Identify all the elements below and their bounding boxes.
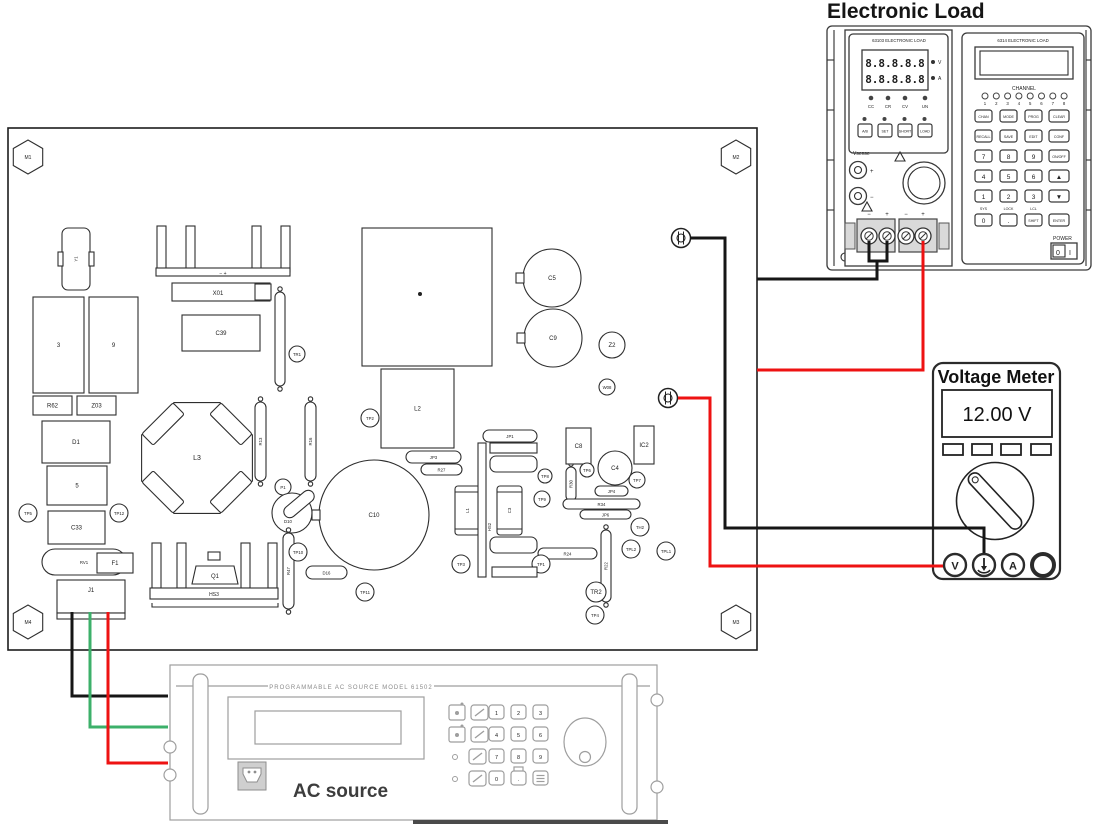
pcb-jp3: JP3 [406,451,461,463]
pcb-r47: R47 [283,528,294,614]
svg-text:CHAN: CHAN [978,115,989,119]
svg-text:▼: ▼ [1056,194,1062,201]
ac-source-label: AC source [293,781,388,802]
pcb-tp4: TP4 [586,606,604,624]
meter-button-2[interactable] [972,444,992,455]
hs1-polarity: − + [219,271,226,277]
meter-terminal-blank [1032,554,1054,576]
key-▼[interactable]: ▼ [1049,190,1069,202]
svg-text:1: 1 [982,194,986,201]
pcb-c39: C39 [182,315,260,351]
svg-text:RV1: RV1 [80,560,89,565]
svg-text:2: 2 [517,711,520,717]
svg-text:TP10: TP10 [293,550,304,555]
svg-text:C9: C9 [549,336,557,342]
pcb-r13: R13 [255,397,266,486]
svg-text:−: − [870,195,874,201]
pcb-l1: L1 [455,486,480,535]
svg-text:F1: F1 [111,561,119,567]
svg-text:EDIT: EDIT [1029,135,1038,139]
ac-key-0[interactable]: 0 [489,771,504,785]
pcb-output-terminal-1 [672,229,691,248]
svg-text:Y1: Y1 [74,256,79,262]
svg-text:Z03: Z03 [91,404,102,410]
pcb-tp6: TP6 [580,463,594,477]
module-display-row2: 8.8.8.8.8 [865,73,925,86]
hs3-label: HS3 [209,592,219,598]
svg-text:D10: D10 [284,519,292,524]
pcb-tp11: TP11 [356,583,374,601]
pcb-r16: R16 [305,397,316,486]
ac-key-9[interactable]: 9 [533,749,548,763]
key-3[interactable]: 3 [1025,190,1042,202]
ac-key-4[interactable]: 4 [489,727,504,741]
pcb-l2: L2 [381,369,454,448]
svg-text:D16: D16 [323,571,331,576]
pcb-jp6: JP6 [580,510,631,519]
svg-text:5: 5 [1007,174,1011,181]
key-recall[interactable]: RECALL [975,130,992,142]
svg-text:R16: R16 [308,437,313,445]
key-prog[interactable]: PROG [1025,110,1042,122]
module-knob[interactable] [903,162,945,204]
svg-text:TP7: TP7 [633,478,641,483]
usb-connector-icon [238,762,266,790]
svg-text:9: 9 [1032,154,1036,161]
module-header: 63103 ELECTRONIC LOAD [872,38,926,43]
pcb-r62: R62 [33,396,72,415]
hs2-label: HS2 [487,522,492,531]
key-mode[interactable]: MODE [1000,110,1017,122]
key-2[interactable]: 2 [1000,190,1017,202]
pcb-r34: R34 [563,499,640,509]
svg-text:UN: UN [922,104,928,109]
svg-text:CLEAR: CLEAR [1053,115,1065,119]
pcb-tp10: TP10 [289,543,307,561]
key-sublabel-sys: SYS [980,207,988,211]
ac-key-2[interactable]: 2 [511,705,526,719]
svg-text:Z2: Z2 [608,343,616,349]
pcb-c3: C3 [497,486,522,535]
mainframe-header: 6314 ELECTRONIC LOAD [997,38,1048,43]
pcb-tp7: TP7 [629,472,645,488]
svg-text:6: 6 [1032,174,1036,181]
svg-text:6: 6 [539,733,542,739]
pcb-p1: P1 [275,479,291,495]
pcb-z03: Z03 [77,396,116,415]
svg-text:TP2: TP2 [366,416,374,421]
q1-label: Q1 [211,574,220,580]
key-0[interactable]: 0 [975,214,992,226]
svg-text:TH2: TH2 [636,525,645,530]
key-sublabel-lcl: LCL [1030,207,1037,211]
terminal-polarity: + [885,212,889,218]
svg-text:C33: C33 [71,526,83,532]
pcb-w08: W08 [599,379,615,395]
key-▲[interactable]: ▲ [1049,170,1069,182]
pcb-c8: C8 [566,428,591,464]
svg-text:.: . [1008,218,1010,225]
meter-button-4[interactable] [1031,444,1051,455]
svg-text:LOAD: LOAD [920,130,930,134]
ac-key-1[interactable]: 1 [489,705,504,719]
svg-text:W08: W08 [603,385,612,390]
svg-text:TP1: TP1 [537,562,545,567]
ac-key-8[interactable]: 8 [511,749,526,763]
svg-text:+: + [870,169,874,175]
key-1[interactable]: 1 [975,190,992,202]
ac-source: PROGRAMMABLE AC SOURCE MODEL 61502 12345… [164,665,668,822]
svg-text:TP5: TP5 [24,511,32,516]
pcb-pillv [275,287,285,391]
svg-text:JP3: JP3 [430,455,438,460]
svg-text:C10: C10 [368,513,380,519]
key-9[interactable]: 9 [1025,150,1042,162]
svg-text:SET: SET [882,130,890,134]
pcb-c33: C33 [48,511,105,544]
pcb-board: M1M2M3M4 Y139R62Z03D15C33TP5TP12RV1F1J1C… [8,128,757,650]
load-module: 63103 ELECTRONIC LOAD 8.8.8.8.8 8.8.8.8.… [845,30,952,266]
svg-text:7: 7 [495,755,498,761]
svg-text:2: 2 [1007,194,1011,201]
svg-text:PROG: PROG [1028,115,1039,119]
svg-text:R47: R47 [286,566,291,574]
svg-text:M3: M3 [733,620,740,626]
svg-text:JP4: JP4 [608,489,616,494]
pcb-c4: C4 [598,451,632,485]
svg-text:TR1: TR1 [293,352,302,357]
svg-text:R34: R34 [598,502,606,507]
meter-terminal-ground [973,554,995,576]
pcb-d1: D1 [42,421,110,463]
mainframe-lcd [975,47,1073,79]
electronic-load: Electronic Load 63103 ELECTRONIC LOAD 8.… [827,0,1091,270]
vsense-label: Vsense [853,151,870,157]
ac-function-key-4[interactable] [469,771,486,786]
pcb-l3: L3 [142,403,253,514]
svg-text:J1: J1 [88,588,95,594]
svg-text:▲: ▲ [1056,174,1062,181]
svg-text:8: 8 [1007,154,1011,161]
meter-button-1[interactable] [943,444,963,455]
svg-text:4: 4 [495,733,498,739]
pcb-tpl2: TPL2 [622,540,640,558]
svg-text:TP12: TP12 [114,511,125,516]
pcb-tr2: TR2 [586,582,606,602]
svg-text:1: 1 [495,711,498,717]
ac-handle-left [193,674,208,814]
svg-text:L2: L2 [414,407,421,413]
terminal-polarity: + [921,212,925,218]
svg-text:JP1: JP1 [506,434,514,439]
pcb-tp8: TP8 [538,469,552,483]
pcb-rect [362,228,492,366]
hs1-label: X01 [213,291,224,297]
pcb-tr1: TR1 [289,346,305,362]
svg-text:4: 4 [982,174,986,181]
ac-special-key-1[interactable] [449,703,465,721]
pcb-tp12: TP12 [110,504,128,522]
key-4[interactable]: 4 [975,170,992,182]
key-5[interactable]: 5 [1000,170,1017,182]
svg-text:TP3: TP3 [457,562,465,567]
key-7[interactable]: 7 [975,150,992,162]
svg-text:MODE: MODE [1003,115,1014,119]
svg-text:JP6: JP6 [602,513,610,518]
electronic-load-title: Electronic Load [827,0,985,23]
svg-text:7: 7 [982,154,986,161]
svg-text:R62: R62 [47,404,59,410]
svg-text:L3: L3 [193,455,201,462]
svg-text:3: 3 [1032,194,1036,201]
power-switch[interactable]: 0 I [1051,243,1077,259]
svg-text:C8: C8 [575,444,583,450]
ac-function-key-2[interactable] [471,727,488,742]
pcb-tp9: TP9 [534,491,550,507]
pcb-5: 5 [47,466,107,505]
svg-text:C4: C4 [611,466,619,472]
pcb-y1: Y1 [58,228,94,290]
pcb-jp4: JP4 [595,486,628,496]
svg-text:R27: R27 [438,468,446,473]
svg-text:SHIFT: SHIFT [1028,219,1039,223]
power-label: POWER [1053,236,1072,242]
svg-text:R13: R13 [258,437,263,445]
svg-text:M1: M1 [25,155,32,161]
svg-text:3: 3 [539,711,542,717]
pcb-th2: TH2 [631,518,649,536]
module-display-row1: 8.8.8.8.8 [865,57,925,70]
pcb-tp5: TP5 [19,504,37,522]
svg-text:R30: R30 [569,479,574,487]
ac-lcd [255,711,401,744]
pcb-z2: Z2 [599,332,625,358]
key-on-off[interactable]: ON/OFF [1049,150,1069,162]
meter-title: Voltage Meter [938,367,1055,387]
svg-text:CV: CV [902,104,908,109]
power-off-label: 0 [1056,250,1060,257]
ac-header: PROGRAMMABLE AC SOURCE MODEL 61502 [269,685,432,691]
power-on-label: I [1069,250,1071,257]
svg-text:D1: D1 [72,440,80,446]
key-6[interactable]: 6 [1025,170,1042,182]
svg-text:TP9: TP9 [538,497,546,502]
svg-text:8: 8 [517,755,520,761]
svg-text:TP8: TP8 [541,474,549,479]
voltage-meter: Voltage Meter 12.00 V VA [933,363,1060,579]
svg-text:V: V [951,561,959,573]
pcb-f1: F1 [97,553,133,573]
pcb-tp2: TP2 [361,409,379,427]
key-enter[interactable]: ENTER [1049,214,1069,226]
pcb-ic2: IC2 [634,426,654,464]
ac-special-key-2[interactable] [449,725,465,743]
ac-key-7[interactable]: 7 [489,749,504,763]
svg-text:P1: P1 [280,485,286,490]
key-save[interactable]: SAVE [1000,130,1017,142]
wiring-diagram: M1M2M3M4 Y139R62Z03D15C33TP5TP12RV1F1J1C… [0,0,1100,829]
svg-text:TP11: TP11 [360,590,371,595]
svg-text:9: 9 [539,755,542,761]
key-sublabel-lock: LOCK [1004,207,1014,211]
svg-text:CR: CR [885,104,891,109]
terminal-polarity: − [867,212,871,218]
svg-text:TR2: TR2 [590,590,602,596]
pcb-output-terminal-2 [659,389,678,408]
svg-text:M4: M4 [25,620,32,626]
ac-key-3[interactable]: 3 [533,705,548,719]
svg-text:A/B: A/B [862,130,868,134]
key-chan[interactable]: CHAN [975,110,992,122]
meter-reading: 12.00 V [963,404,1033,426]
svg-text:ENTER: ENTER [1053,219,1066,223]
key-conf[interactable]: CONF [1049,130,1069,142]
load-terminal-3 [898,228,914,244]
key-edit[interactable]: EDIT [1025,130,1042,142]
svg-text:TP4: TP4 [591,613,599,618]
ac-handle-right [622,674,637,814]
svg-text:C39: C39 [215,331,227,337]
pcb-d16: D16 [306,566,347,579]
channel-label: CHANNEL [1012,86,1036,92]
svg-text:C3: C3 [507,507,512,513]
svg-text:SHORT: SHORT [899,130,912,134]
pcb-tpl1: TPL1 [657,542,675,560]
svg-text:IC2: IC2 [639,443,649,449]
meter-button-3[interactable] [1001,444,1021,455]
ac-key-6[interactable]: 6 [533,727,548,741]
terminal-polarity: − [904,212,908,218]
svg-text:C5: C5 [548,276,556,282]
svg-text:ON/OFF: ON/OFF [1052,155,1066,159]
svg-text:CC: CC [868,104,874,109]
svg-text:5: 5 [517,733,520,739]
meter-terminal-a: A [1002,554,1024,576]
pcb-9: 9 [89,297,138,393]
pcb-3: 3 [33,297,84,393]
svg-text:TPL1: TPL1 [661,549,672,554]
load-mainframe: 6314 ELECTRONIC LOAD CHANNEL 12345678 CH… [962,33,1084,264]
svg-text:L1: L1 [465,508,470,513]
svg-text:M2: M2 [733,155,740,161]
key-8[interactable]: 8 [1000,150,1017,162]
svg-text:R24: R24 [564,552,572,557]
svg-text:A: A [1009,561,1017,573]
ac-knob[interactable] [564,718,606,766]
svg-text:SAVE: SAVE [1004,135,1014,139]
ac-function-key-3[interactable] [469,749,486,764]
key-clear[interactable]: CLEAR [1049,110,1069,122]
svg-text:0: 0 [982,218,986,225]
ac-key-enter[interactable] [533,771,548,785]
meter-terminal-v: V [944,554,966,576]
svg-text:R22: R22 [604,561,609,569]
ac-key-5[interactable]: 5 [511,727,526,741]
key-shift[interactable]: SHIFT [1025,214,1042,226]
svg-text:RECALL: RECALL [977,135,991,139]
svg-text:TP6: TP6 [583,468,591,473]
pcb-r27: R27 [421,464,462,475]
svg-text:0: 0 [495,777,498,783]
svg-text:CONF: CONF [1054,135,1065,139]
ac-function-key-1[interactable] [471,705,488,720]
pcb-tp3: TP3 [452,555,470,573]
svg-text:TPL2: TPL2 [626,547,637,552]
pcb-jp1: JP1 [483,430,537,442]
key-.[interactable]: . [1000,214,1017,226]
